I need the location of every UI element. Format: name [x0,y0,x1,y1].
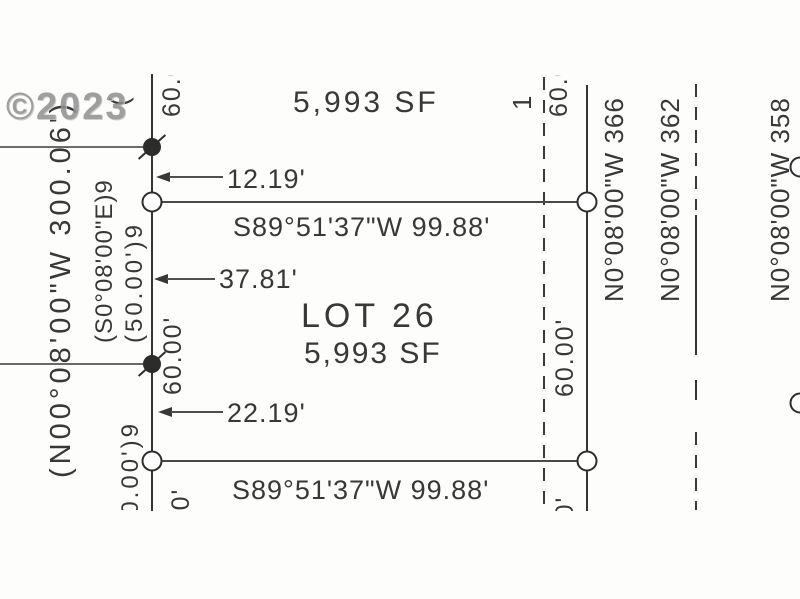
offset-north-arrow-line [169,176,223,178]
west-north-frontage-stub: 60.00' [159,75,185,117]
offset-south-arrow-line [171,411,223,413]
plat-map: ©2023 5,993 SF S89°51'37"W 99.88' LOT 26… [0,0,800,599]
street-centerline-dashed [543,77,545,508]
west-south-frontage-stub: 60.00' [168,477,194,510]
west-north-frontage-clip: 60.00' [159,75,191,117]
north-boundary-bearing-label: S89°51'37"W 99.88' [233,212,490,243]
lot-north-boundary-line [152,201,588,203]
west-record-distance-south-label: (50.00')9 [118,402,143,510]
east-north-frontage-clip: 60.00' [546,75,578,117]
arrow-left-icon [158,407,172,417]
found-monument-north [143,138,161,156]
edge-corner-lower [790,393,800,414]
east-frontage-label: 60.00' [552,297,578,397]
east-lot-label-358: N0°08'00"W 358 [767,86,794,302]
offset-north-dim: 12.19' [227,164,306,195]
copyright-watermark: ©2023 [6,86,129,129]
east-boundary-line [586,85,588,511]
west-boundary-bearing-label: (N00°08'00"W 300.06') [46,80,76,478]
arrow-left-icon [156,172,170,182]
top-edge-tick-label: 1 [509,80,536,110]
lot-south-boundary-line [152,460,588,462]
offset-middle-dim: 37.81' [219,264,298,295]
found-monument-south [143,355,161,373]
south-boundary-bearing-label: S89°51'37"W 99.88' [232,475,489,506]
east-lot-line-solid-segment [695,215,697,355]
east-north-frontage-stub: 60.00' [546,75,572,117]
west-frontage-label: 60.00' [160,295,186,395]
west-record-bearing-label: (S0°08'00"E)9 [92,155,117,343]
east-lot-line-short-dash [695,380,697,400]
lot-corner-nw [142,192,163,213]
offset-south-dim: 22.19' [227,398,306,429]
east-lot-line-dashed-lower [695,432,697,510]
north-lot-area-label: 5,993 SF [293,86,439,120]
east-lot-label-366: N0°08'00"W 366 [601,86,628,302]
offset-middle-arrow-line [167,278,215,280]
lot-corner-se [577,451,598,472]
arrow-left-icon [154,274,168,284]
lot-corner-ne [577,192,598,213]
east-south-frontage-clip: 60.00' [552,485,584,511]
lot-area-label: 5,993 SF [304,337,442,371]
east-lot-line-dashed-upper [695,84,697,210]
east-lot-label-362: N0°08'00"W 362 [657,86,684,302]
east-south-frontage-stub: 60.00' [552,485,578,511]
lot-name-label: LOT 26 [301,297,438,336]
monument-tick-icon [138,134,166,160]
west-record-distance-label: (50.00')9 [122,194,147,343]
lot-corner-sw [142,451,163,472]
west-south-frontage-clip: 60.00' [168,477,200,510]
